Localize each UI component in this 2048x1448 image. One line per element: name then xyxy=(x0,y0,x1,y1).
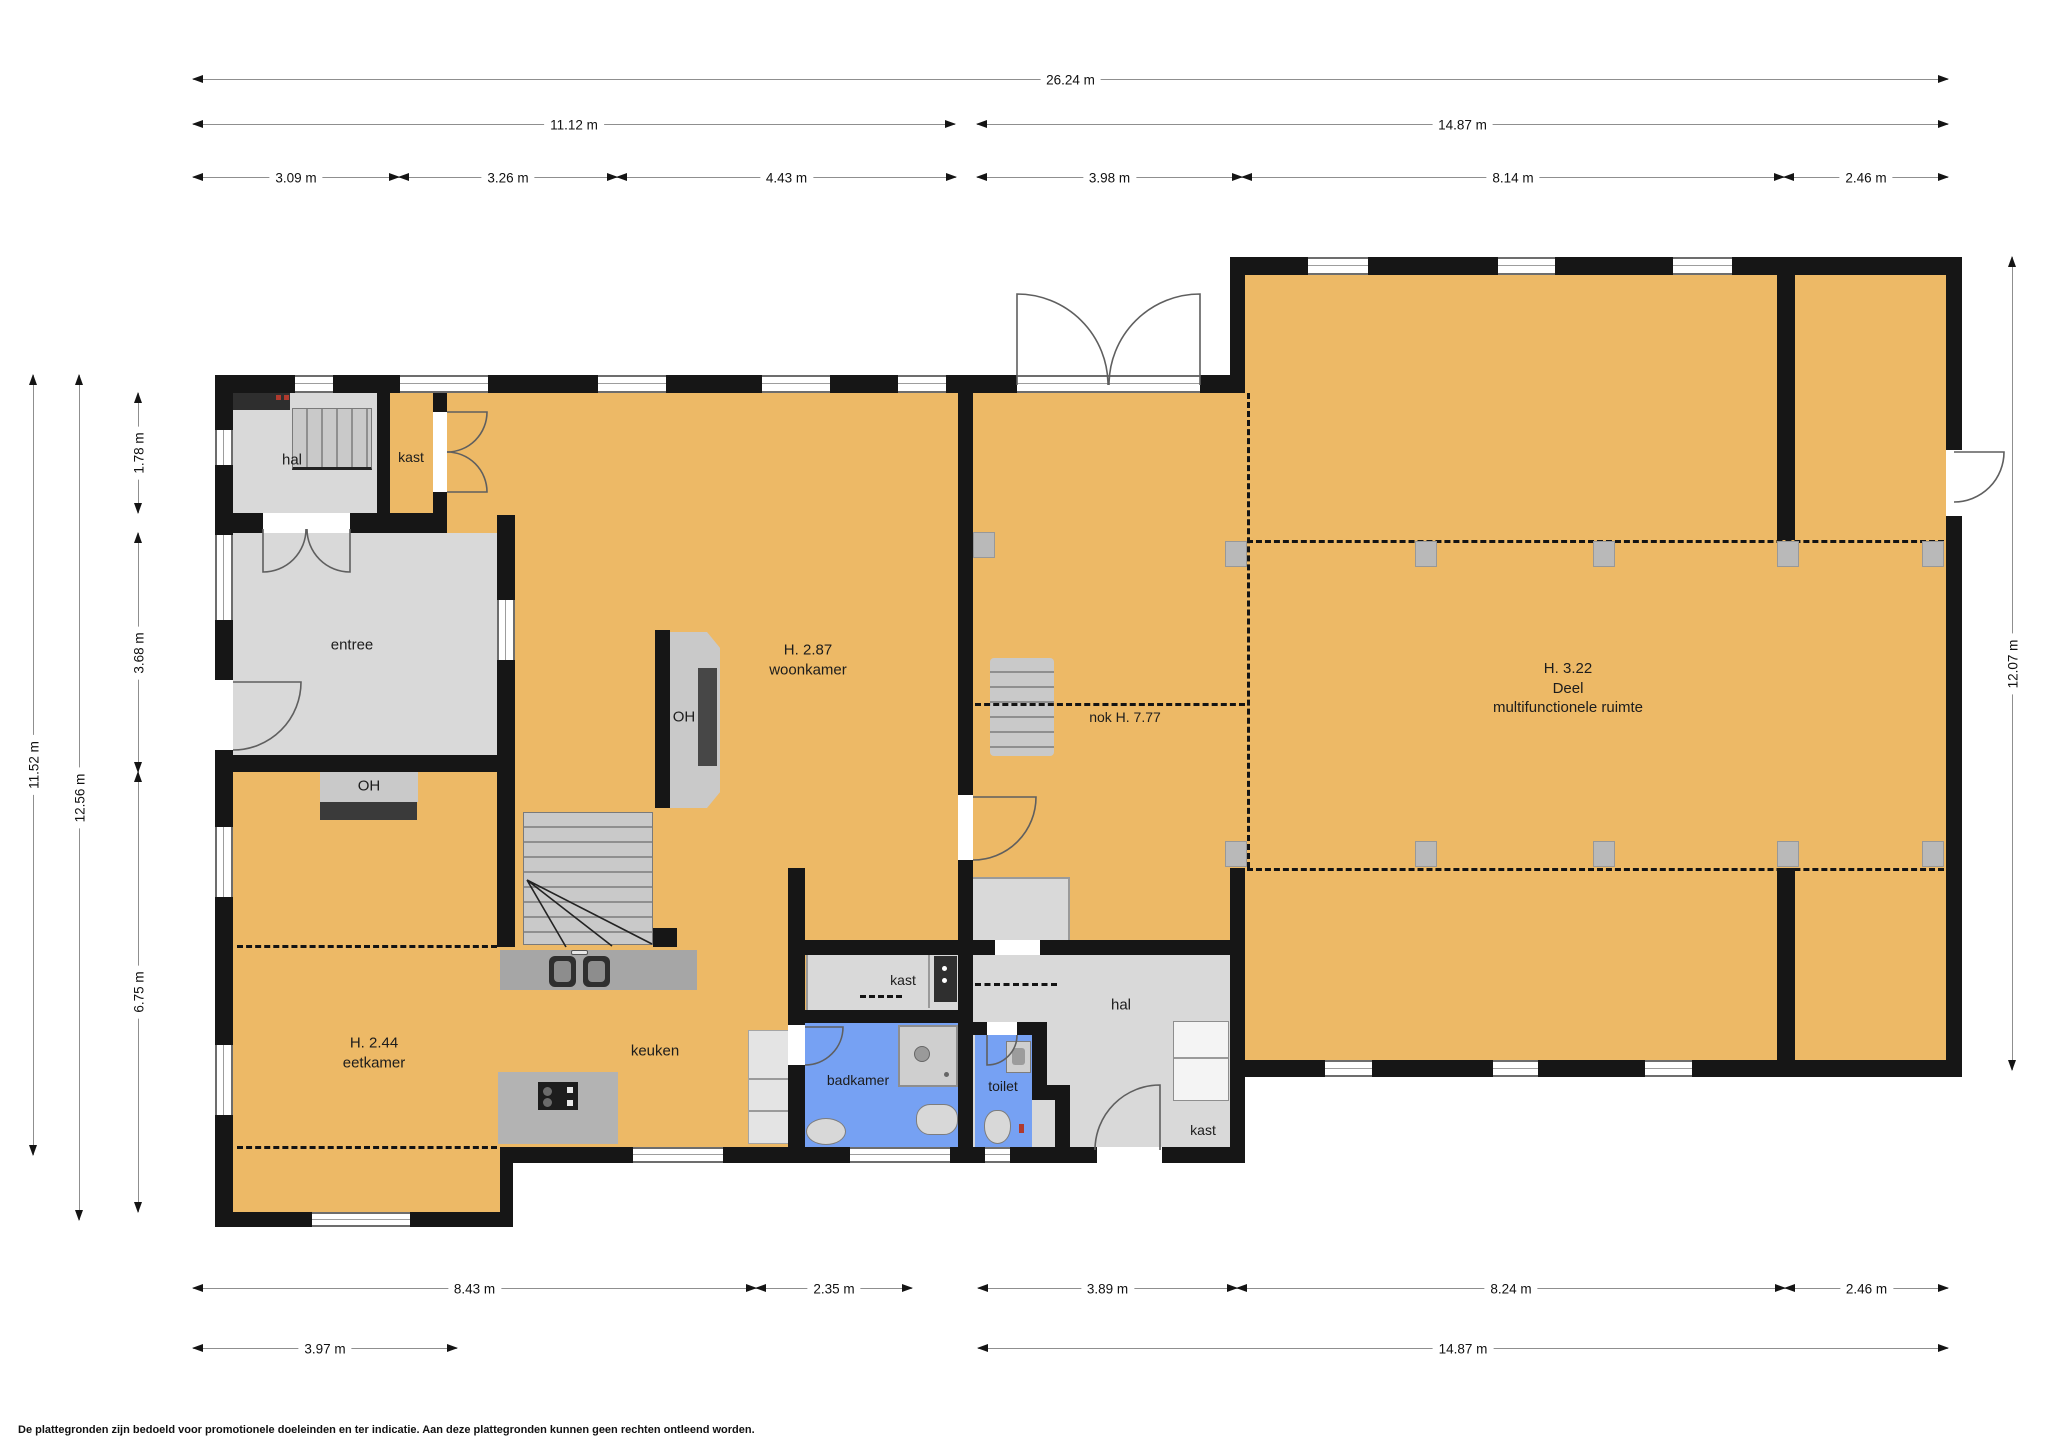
dim-label: 8.24 m xyxy=(1484,1282,1537,1297)
post xyxy=(1415,541,1437,567)
sliding-door-entree-woonkamer xyxy=(497,600,515,660)
label-kast-lower: kast xyxy=(1190,1121,1216,1139)
wall-barn-left-upper xyxy=(1230,257,1245,393)
floor-plan: 26.24 m 11.12 m 14.87 m 3.09 m 3.26 m 4.… xyxy=(0,0,2048,1448)
stairs-woonkamer xyxy=(523,812,653,945)
post xyxy=(1777,841,1799,867)
dim-seg: 2.46 m xyxy=(1784,177,1948,178)
door-gap-toilet xyxy=(987,1022,1017,1035)
wall-barn-right xyxy=(1946,257,1962,1077)
post xyxy=(1225,841,1247,867)
fireplace-woonkamer-back xyxy=(655,630,670,808)
window xyxy=(898,375,946,393)
label-nok: nok H. 7.77 xyxy=(1089,708,1161,726)
door-gap-woonkamer-middle xyxy=(958,795,973,860)
dim-seg: 6.75 m xyxy=(138,772,139,1212)
post xyxy=(1593,841,1615,867)
wall-entree-right xyxy=(497,515,515,947)
window xyxy=(400,375,488,393)
door-gap-hal-entree xyxy=(263,513,350,533)
shower-head xyxy=(914,1046,930,1062)
window xyxy=(1493,1060,1538,1077)
floor-eetkamer-ext xyxy=(233,1147,500,1212)
sink-basin xyxy=(554,961,571,982)
stair-stub-wall xyxy=(653,928,677,947)
landing-edge xyxy=(1068,877,1070,940)
sink-basin xyxy=(588,961,605,982)
dim-label: 2.35 m xyxy=(807,1282,860,1297)
label-hal-lower: hal xyxy=(1111,995,1131,1015)
label-woonkamer: H. 2.87 woonkamer xyxy=(769,641,847,680)
post xyxy=(1922,541,1944,567)
dim-total-width: 26.24 m xyxy=(193,79,1948,80)
dim-label: 3.98 m xyxy=(1083,171,1136,186)
toilet-bowl xyxy=(984,1110,1011,1144)
post xyxy=(1922,841,1944,867)
landing-edge xyxy=(973,877,1068,879)
cooktop-knob xyxy=(567,1087,573,1093)
wall-barn-interior-lower xyxy=(1777,868,1795,1060)
dim-label: 6.75 m xyxy=(132,965,147,1018)
hal-cabinet-shelf xyxy=(1174,1057,1228,1059)
wall-toilet-right-lower xyxy=(1055,1100,1070,1147)
door-gap-badkamer xyxy=(788,1025,805,1065)
dim-label: 11.12 m xyxy=(544,118,604,133)
label-entree: entree xyxy=(331,635,374,655)
dim-label: 8.14 m xyxy=(1486,171,1539,186)
dim-label: 12.56 m xyxy=(73,767,88,828)
wall-middle-left xyxy=(958,393,973,1147)
window xyxy=(1325,1060,1372,1077)
window xyxy=(215,1045,233,1115)
dim-seg: 8.43 m xyxy=(193,1288,756,1289)
window xyxy=(295,375,333,393)
post xyxy=(1777,541,1799,567)
window xyxy=(215,430,233,465)
window xyxy=(598,375,666,393)
window xyxy=(312,1212,410,1227)
shower-drain xyxy=(944,1072,949,1077)
door-gap-barn-right xyxy=(1946,450,1962,516)
roofline-hal xyxy=(975,983,1057,986)
dim-seg: 3.26 m xyxy=(399,177,617,178)
dim-label: 4.43 m xyxy=(760,171,813,186)
roofline-nok xyxy=(975,703,1245,706)
dim-label: 3.68 m xyxy=(132,626,147,679)
dim-label: 1.78 m xyxy=(132,426,147,479)
dim-label: 12.07 m xyxy=(2006,633,2021,694)
dim-seg: 3.97 m xyxy=(193,1348,457,1349)
dim-seg: 8.24 m xyxy=(1237,1288,1785,1289)
window xyxy=(1498,257,1555,275)
window xyxy=(215,535,233,620)
fireplace-woonkamer-insert xyxy=(698,668,717,766)
label-kast-boiler: kast xyxy=(890,971,916,989)
door-gap-kast xyxy=(433,412,447,492)
dim-label: 2.46 m xyxy=(1840,1282,1893,1297)
window xyxy=(1308,257,1368,275)
dim-house-height-2: 12.56 m xyxy=(79,375,80,1220)
dim-label: 26.24 m xyxy=(1040,73,1101,88)
cooktop-knob xyxy=(567,1100,573,1106)
dim-label: 11.52 m xyxy=(27,735,42,795)
disclaimer-text: De plattegronden zijn bedoeld voor promo… xyxy=(18,1424,755,1436)
wall-entree-bottom xyxy=(215,755,515,772)
boiler-door-line xyxy=(928,952,930,1008)
stairs-hal xyxy=(292,408,372,470)
dim-seg: 4.43 m xyxy=(617,177,956,178)
dim-label: 14.87 m xyxy=(1432,118,1493,133)
cabinet-divider xyxy=(749,1078,789,1080)
boiler-dot xyxy=(942,966,947,971)
wall-step xyxy=(500,1147,513,1227)
door-gap-hal-middle xyxy=(995,940,1040,955)
window xyxy=(633,1147,723,1163)
post xyxy=(1593,541,1615,567)
wall-toilet-right xyxy=(1032,1035,1047,1090)
dim-label: 3.26 m xyxy=(481,171,534,186)
cooktop-burner xyxy=(543,1098,552,1107)
dim-barn-height: 12.07 m xyxy=(2012,257,2013,1070)
window-double-door-sill xyxy=(1017,375,1200,393)
cooktop-burner xyxy=(543,1087,552,1096)
toilet-basin-bowl xyxy=(1012,1048,1025,1065)
label-oh-eetkamer: OH xyxy=(358,776,381,796)
label-toilet: toilet xyxy=(988,1077,1018,1095)
dim-seg: 1.78 m xyxy=(138,393,139,513)
dim-label: 8.43 m xyxy=(448,1282,501,1297)
dim-seg: 2.35 m xyxy=(756,1288,912,1289)
toilet-accent xyxy=(1019,1124,1024,1133)
wall-kast-left xyxy=(377,393,390,513)
roofline-eetkamer xyxy=(237,945,497,948)
stairs-middle xyxy=(990,658,1054,756)
wall-barn-left-lower xyxy=(1230,868,1245,1163)
wall-keuken-badkamer xyxy=(788,868,805,1147)
sliding-door-kast-boiler xyxy=(806,955,808,1010)
dim-seg: 3.09 m xyxy=(193,177,399,178)
dim-seg: 3.68 m xyxy=(138,533,139,772)
dim-label: 3.09 m xyxy=(269,171,322,186)
window xyxy=(850,1147,950,1163)
dim-seg: 14.87 m xyxy=(978,1348,1948,1349)
dim-label: 3.97 m xyxy=(298,1342,351,1357)
roofline-barn-left xyxy=(1247,393,1250,868)
tall-cabinet xyxy=(748,1030,790,1144)
roofline-barn-lower xyxy=(1247,868,1944,871)
dim-house-height: 11.52 m xyxy=(33,375,34,1155)
wardrobe-accent xyxy=(276,395,281,400)
label-oh-woonkamer: OH xyxy=(673,707,696,727)
dim-seg: 8.14 m xyxy=(1242,177,1784,178)
label-deel: H. 3.22 Deel multifunctionele ruimte xyxy=(1493,659,1643,718)
dim-barn-width: 14.87 m xyxy=(977,124,1948,125)
roofline-eetkamer xyxy=(237,1146,497,1149)
window xyxy=(985,1147,1010,1163)
roofline-kast xyxy=(860,995,902,998)
door-gap-hal-back xyxy=(1097,1147,1162,1163)
label-eetkamer: H. 2.44 eetkamer xyxy=(343,1034,406,1073)
dim-seg: 3.89 m xyxy=(978,1288,1237,1289)
door-gap-entree-door xyxy=(215,680,233,750)
wall-barn-interior-upper xyxy=(1777,275,1795,540)
post xyxy=(973,532,995,558)
post xyxy=(1225,541,1247,567)
window xyxy=(1645,1060,1692,1077)
wall-badkamer-top xyxy=(788,1010,973,1023)
label-badkamer: badkamer xyxy=(827,1071,889,1089)
dim-label: 14.87 m xyxy=(1433,1342,1494,1357)
hal-wardrobe xyxy=(233,393,290,410)
label-hal-top: hal xyxy=(282,450,302,470)
fireplace-eetkamer-base xyxy=(320,802,417,820)
dim-label: 3.89 m xyxy=(1081,1282,1134,1297)
post xyxy=(1415,841,1437,867)
hal-cabinet xyxy=(1173,1021,1229,1101)
bathtub xyxy=(916,1104,958,1135)
washbasin xyxy=(806,1118,846,1145)
dim-seg: 3.98 m xyxy=(977,177,1242,178)
window xyxy=(1673,257,1732,275)
window xyxy=(762,375,830,393)
boiler-dot xyxy=(942,978,947,983)
faucet xyxy=(571,950,588,955)
cabinet-divider xyxy=(749,1110,789,1112)
dim-label: 2.46 m xyxy=(1839,171,1892,186)
dim-house-width: 11.12 m xyxy=(193,124,955,125)
label-keuken: keuken xyxy=(631,1041,679,1061)
window xyxy=(215,827,233,897)
label-kast-top: kast xyxy=(398,448,424,466)
wardrobe-accent xyxy=(284,395,289,400)
dim-seg: 2.46 m xyxy=(1785,1288,1948,1289)
room-landing xyxy=(973,878,1068,940)
